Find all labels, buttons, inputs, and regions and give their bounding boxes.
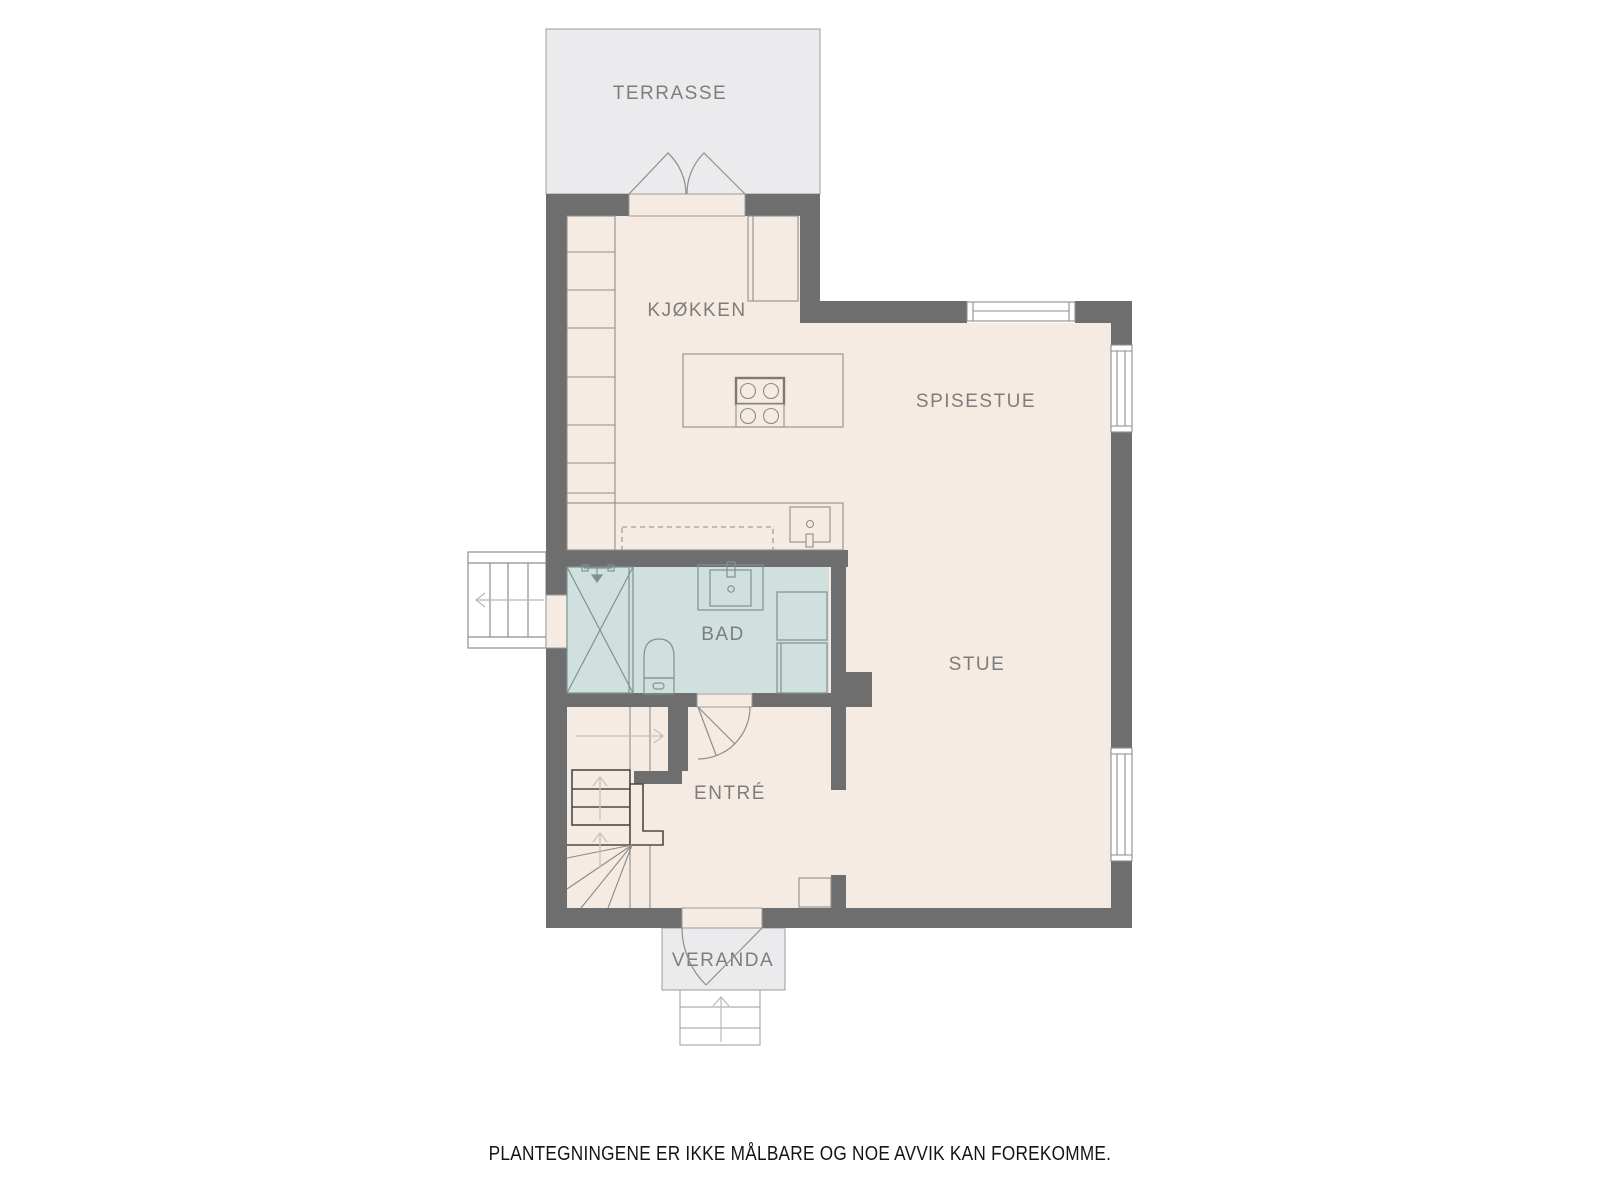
kitchen-tall-cabinet: [748, 216, 798, 301]
wall-kitchen-right: [800, 194, 820, 323]
disclaimer-text: PLANTEGNINGENE ER IKKE MÅLBARE OG NOE AV…: [0, 1143, 1600, 1166]
wall-living-left: [831, 550, 846, 790]
entry-label: ENTRÉ: [694, 783, 766, 804]
dining-top-window: [967, 302, 1075, 321]
kitchen-counter-left: [567, 216, 615, 503]
wall-entry-stub: [668, 707, 688, 771]
wall-bath-bottom-left: [567, 693, 697, 707]
veranda-door-threshold: [682, 908, 762, 928]
entry-cabinet: [799, 878, 831, 907]
veranda-area: VERANDA: [662, 928, 785, 1045]
wall-right-2: [1111, 432, 1132, 748]
wall-left-lower: [546, 648, 567, 928]
wall-left-upper: [546, 194, 567, 595]
wall-bottom-right: [762, 908, 1132, 928]
side-door-threshold: [546, 595, 567, 648]
bath-label: BAD: [701, 624, 745, 645]
stove-icon: [736, 378, 784, 427]
bath-door-threshold: [697, 694, 752, 707]
terrasse-area: TERRASSE: [546, 29, 820, 194]
wall-living-left-pier: [831, 672, 872, 707]
terrasse-label: TERRASSE: [613, 83, 727, 104]
wall-right-1: [1111, 301, 1132, 345]
floor-plan-page: TERRASSE VERANDA: [0, 0, 1600, 1200]
wall-stair-stub: [634, 771, 682, 784]
living-right-window-upper: [1111, 345, 1132, 432]
terrasse-floor: [546, 29, 820, 194]
dining-label: SPISESTUE: [916, 391, 1036, 412]
wall-living-left-lower: [831, 875, 846, 908]
floor-plan-drawing: TERRASSE VERANDA: [0, 0, 1600, 1200]
living-label: STUE: [949, 654, 1006, 675]
kitchen-sink-icon: [790, 507, 830, 547]
wall-bottom-left: [546, 908, 682, 928]
wall-top-kitchen-left: [546, 194, 629, 216]
kitchen-label: KJØKKEN: [647, 300, 746, 321]
wall-top-dining-left: [820, 301, 967, 323]
terrasse-door-threshold: [629, 194, 745, 216]
living-right-window-lower: [1111, 748, 1132, 861]
disclaimer-text-inner: PLANTEGNINGENE ER IKKE MÅLBARE OG NOE AV…: [489, 1143, 1112, 1166]
